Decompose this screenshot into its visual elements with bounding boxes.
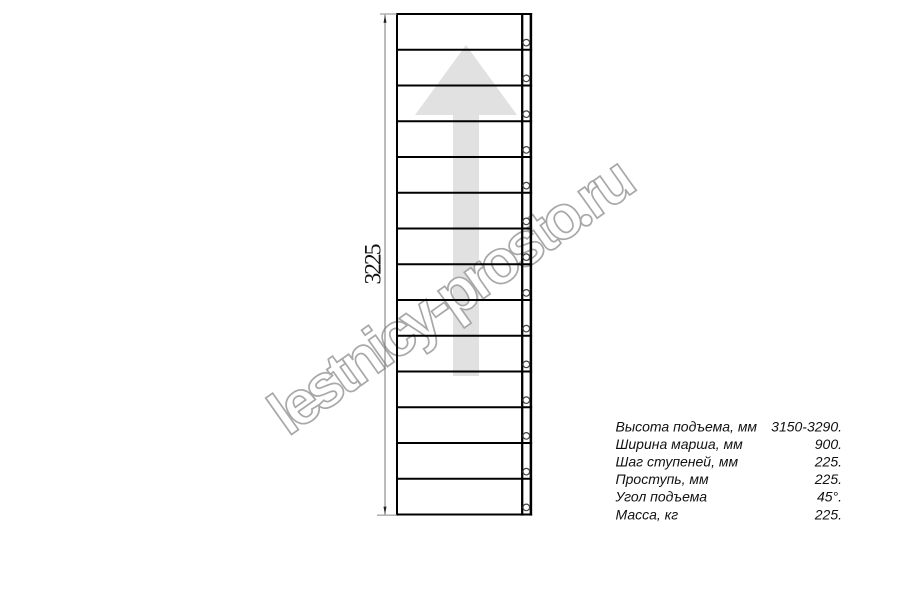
- svg-text:Проступь, мм: Проступь, мм: [616, 471, 710, 487]
- svg-text:Масса, кг: Масса, кг: [616, 506, 679, 522]
- svg-text:Шаг ступеней, мм: Шаг ступеней, мм: [616, 454, 739, 470]
- svg-text:3225: 3225: [361, 244, 387, 284]
- svg-text:225.: 225.: [814, 471, 842, 487]
- svg-text:225.: 225.: [814, 454, 842, 470]
- svg-text:900.: 900.: [815, 436, 842, 452]
- svg-text:Высота подъема, мм: Высота подъема, мм: [616, 418, 758, 434]
- svg-text:3150-3290.: 3150-3290.: [771, 418, 842, 434]
- svg-text:Ширина марша, мм: Ширина марша, мм: [616, 436, 744, 452]
- svg-text:Угол подъема: Угол подъема: [615, 489, 708, 505]
- svg-text:45°.: 45°.: [817, 489, 842, 505]
- svg-text:225.: 225.: [814, 506, 842, 522]
